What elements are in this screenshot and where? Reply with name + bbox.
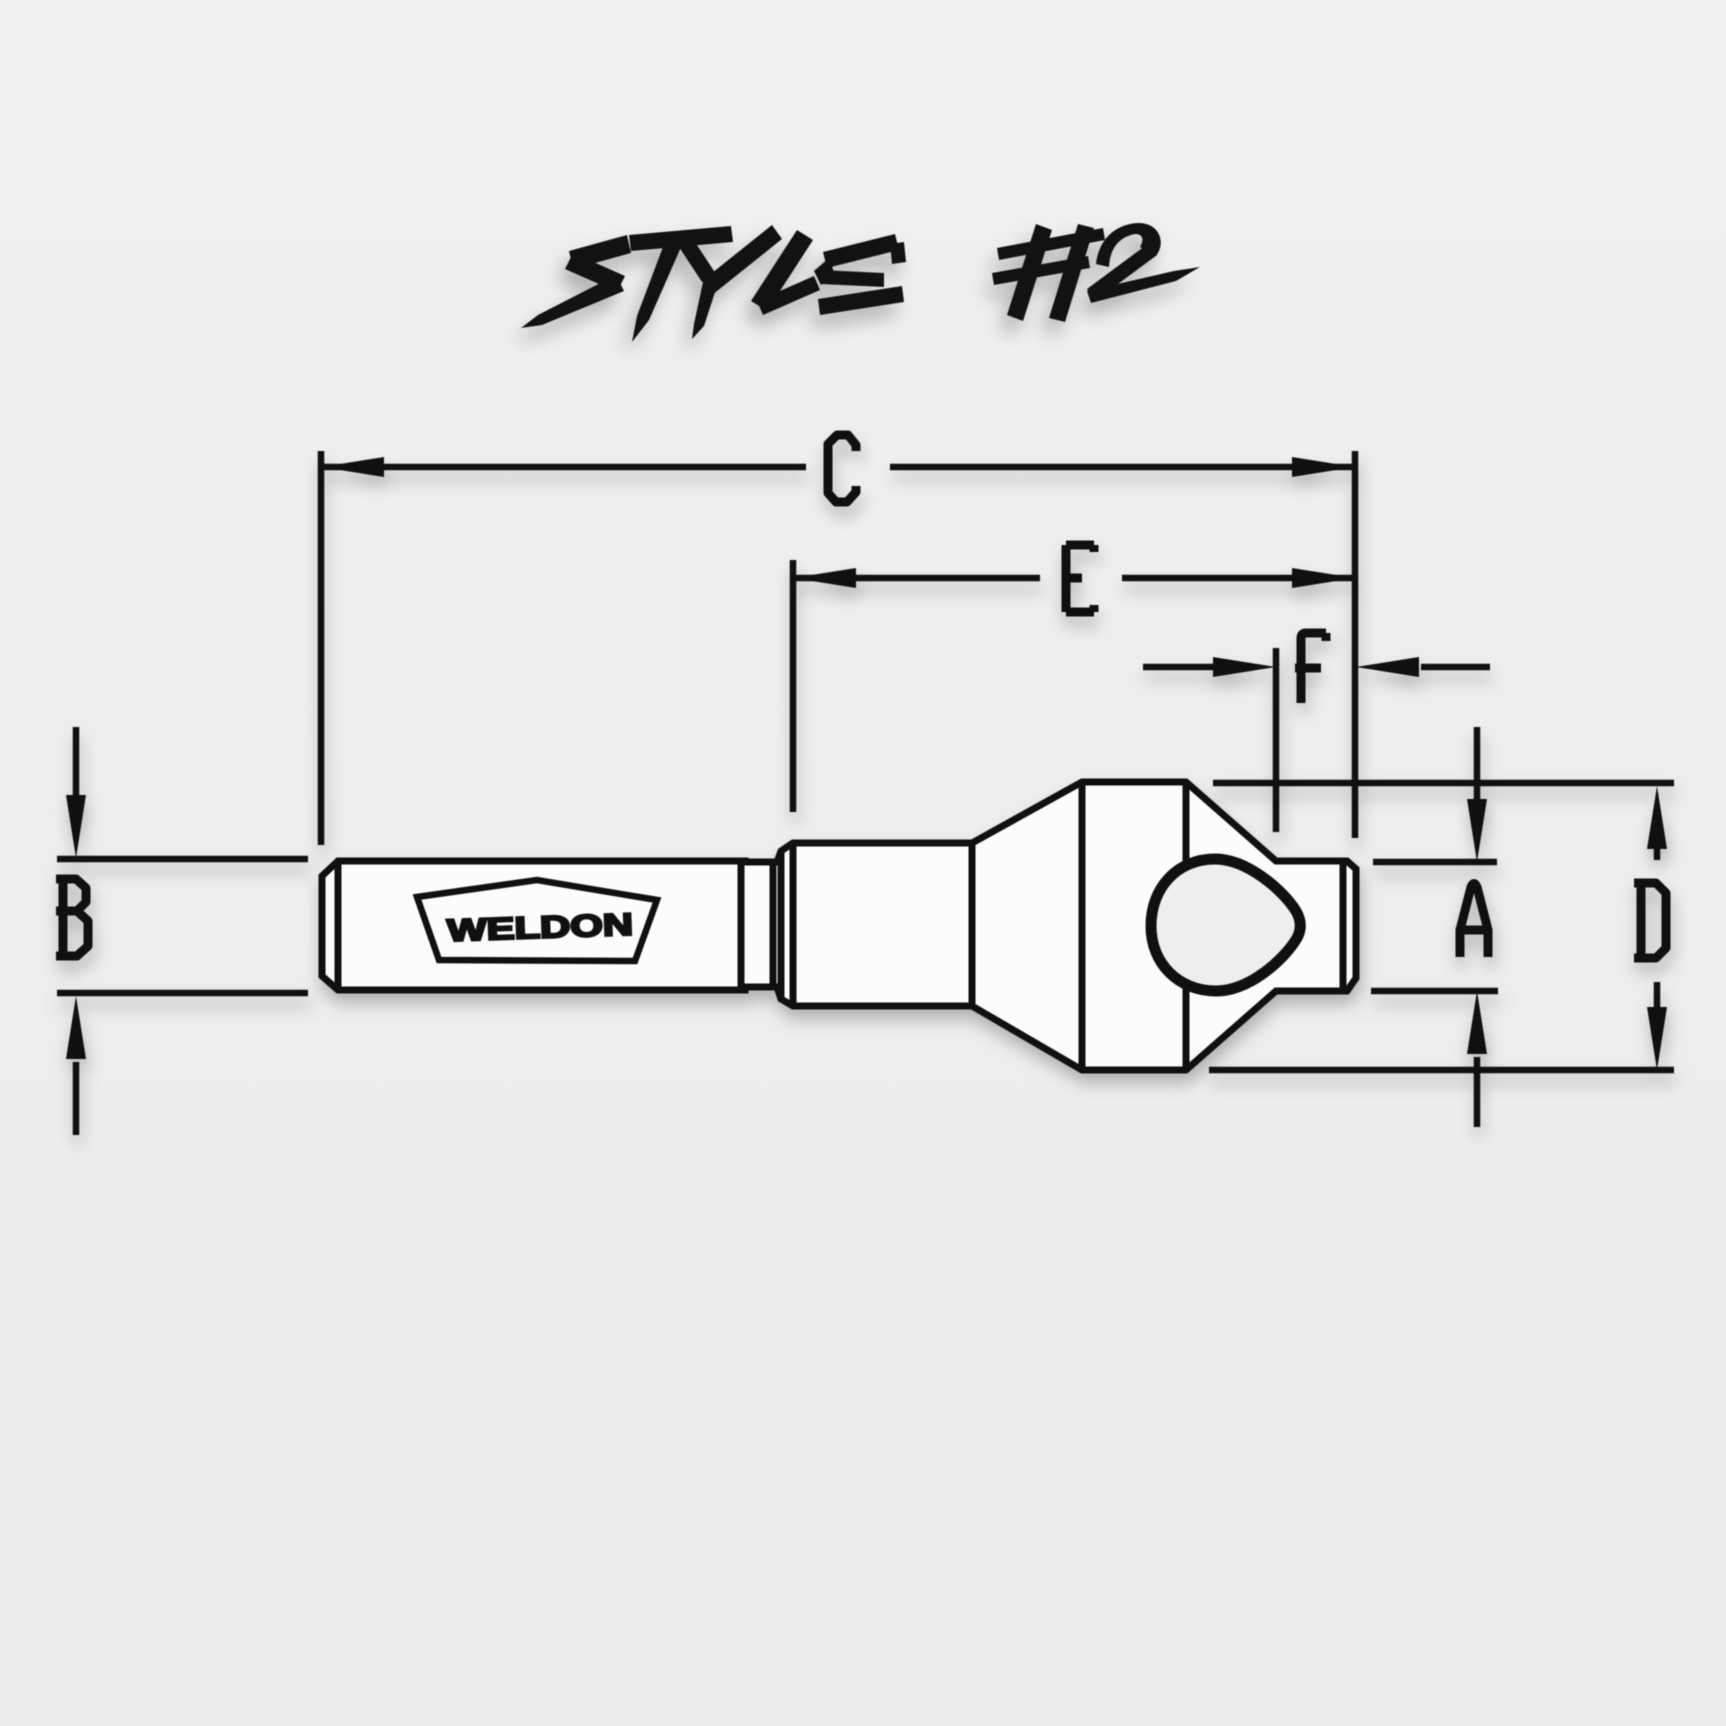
svg-text:WELDON: WELDON <box>447 907 634 948</box>
